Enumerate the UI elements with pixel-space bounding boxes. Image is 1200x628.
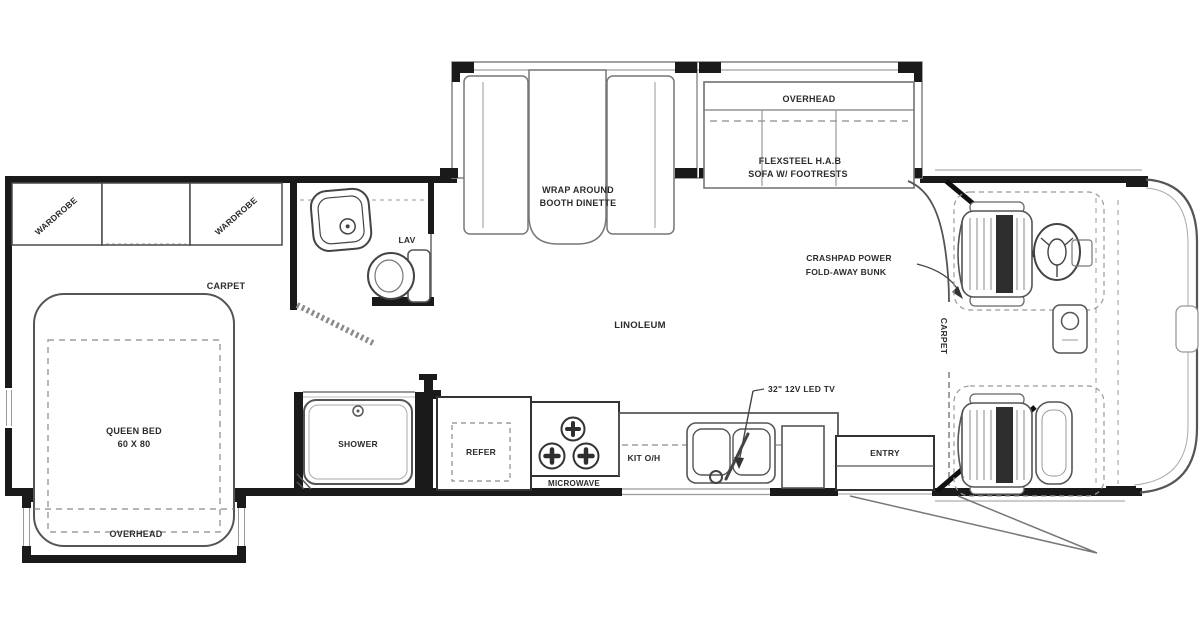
label-queen-bed-2: 60 X 80 — [118, 439, 151, 449]
top-slideout: WRAP AROUND BOOTH DINETTE OVERHEAD FLEXS… — [440, 62, 922, 244]
label-sofa-overhead: OVERHEAD — [782, 94, 835, 104]
entry-door-swing — [850, 496, 1097, 553]
dash-center-box — [1176, 306, 1198, 352]
label-sofa-1: FLEXSTEEL H.A.B — [759, 156, 842, 166]
bathroom: LAV — [297, 176, 434, 343]
label-bunk-2: FOLD-AWAY BUNK — [806, 267, 887, 277]
passenger-seat — [954, 386, 1104, 496]
shower: SHOWER — [294, 374, 437, 490]
label-lav: LAV — [398, 235, 415, 245]
label-overhead-bed: OVERHEAD — [109, 529, 162, 539]
dresser-cabinet — [102, 183, 190, 245]
driver-seat — [954, 192, 1104, 310]
label-sofa-2: SOFA W/ FOOTRESTS — [748, 169, 847, 179]
bath-sink — [310, 187, 373, 252]
bunk-callout: CRASHPAD POWER FOLD-AWAY BUNK — [806, 253, 963, 299]
engine-console — [1053, 305, 1087, 353]
rv-floorplan: WARDROBE WARDROBE CARPET QUEEN BED 60 X … — [0, 0, 1200, 628]
bedroom-bath-wall — [290, 176, 297, 310]
bath-door — [297, 305, 373, 343]
label-carpet-bedroom: CARPET — [207, 281, 246, 291]
refrigerator: REFER — [428, 390, 531, 490]
dinette-table — [529, 70, 606, 244]
carpet-boundary — [908, 181, 949, 302]
label-carpet-cab: CARPET — [939, 318, 949, 355]
label-kit-oh: KIT O/H — [628, 453, 661, 463]
label-bunk-1: CRASHPAD POWER — [806, 253, 892, 263]
label-linoleum: LINOLEUM — [614, 320, 666, 331]
toilet — [368, 250, 430, 302]
counter-cabinet — [782, 426, 824, 488]
floorplan-drawing: WARDROBE WARDROBE CARPET QUEEN BED 60 X … — [0, 0, 1200, 628]
label-microwave: MICROWAVE — [548, 479, 600, 488]
label-entry: ENTRY — [870, 448, 900, 458]
label-dinette-2: BOOTH DINETTE — [540, 198, 617, 208]
label-dinette-1: WRAP AROUND — [542, 185, 614, 195]
queen-bed — [34, 294, 234, 546]
label-tv: 32" 12V LED TV — [768, 384, 835, 394]
label-refer: REFER — [466, 447, 496, 457]
stove-microwave: MICROWAVE — [531, 402, 619, 488]
kitchen-counter: KIT O/H — [619, 413, 838, 488]
front-cap-corner-top — [1126, 176, 1148, 187]
label-shower: SHOWER — [338, 439, 378, 449]
kitchen-sink — [687, 423, 775, 483]
front-cap-corner-bottom — [1106, 486, 1136, 496]
label-queen-bed-1: QUEEN BED — [106, 426, 162, 436]
sofa: OVERHEAD FLEXSTEEL H.A.B SOFA W/ FOOTRES… — [704, 82, 914, 188]
steering-wheel — [1034, 224, 1080, 280]
booth-dinette: WRAP AROUND BOOTH DINETTE — [464, 70, 674, 244]
